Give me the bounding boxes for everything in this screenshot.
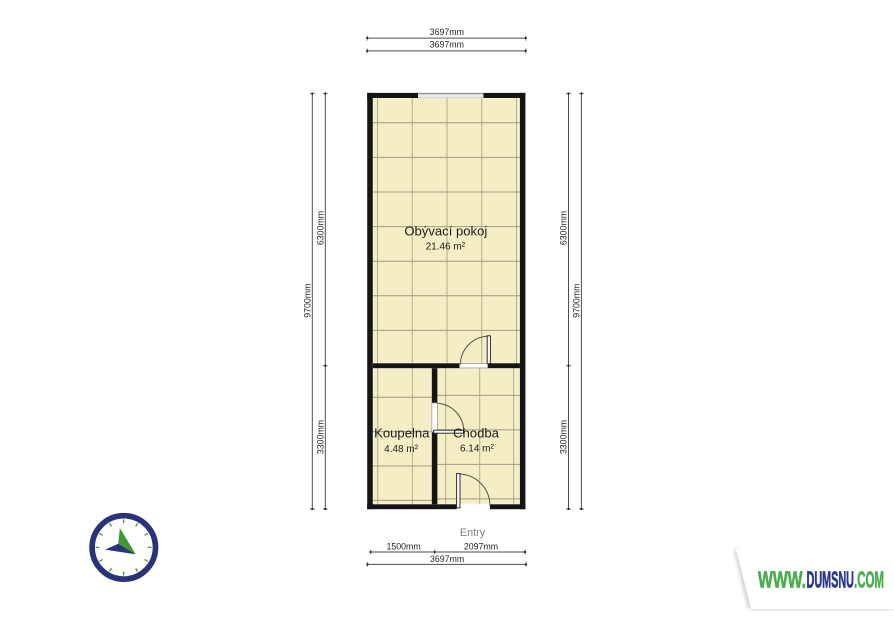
- svg-text:Entry: Entry: [460, 527, 486, 539]
- svg-text:3697mm: 3697mm: [430, 27, 464, 37]
- svg-text:.COM: .COM: [854, 567, 884, 593]
- svg-text:4.48 m²: 4.48 m²: [384, 444, 419, 455]
- svg-text:3697mm: 3697mm: [430, 554, 464, 564]
- svg-text:3300mm: 3300mm: [559, 420, 569, 454]
- svg-text:Chodba: Chodba: [453, 426, 500, 441]
- svg-text:WWW.: WWW.: [758, 567, 806, 593]
- svg-text:Koupelna: Koupelna: [374, 426, 430, 441]
- svg-text:6300mm: 6300mm: [559, 211, 569, 245]
- svg-text:6300mm: 6300mm: [315, 211, 325, 245]
- svg-text:9700mm: 9700mm: [572, 284, 582, 318]
- svg-text:2097mm: 2097mm: [464, 541, 498, 551]
- svg-text:3697mm: 3697mm: [430, 40, 464, 50]
- svg-text:DUMSNU: DUMSNU: [807, 567, 855, 593]
- svg-text:1500mm: 1500mm: [386, 541, 420, 551]
- svg-text:Obývací pokoj: Obývací pokoj: [404, 223, 487, 238]
- svg-text:21.46 m²: 21.46 m²: [426, 241, 466, 252]
- svg-text:9700mm: 9700mm: [302, 284, 312, 318]
- svg-text:6.14 m²: 6.14 m²: [460, 444, 495, 455]
- svg-text:3300mm: 3300mm: [315, 420, 325, 454]
